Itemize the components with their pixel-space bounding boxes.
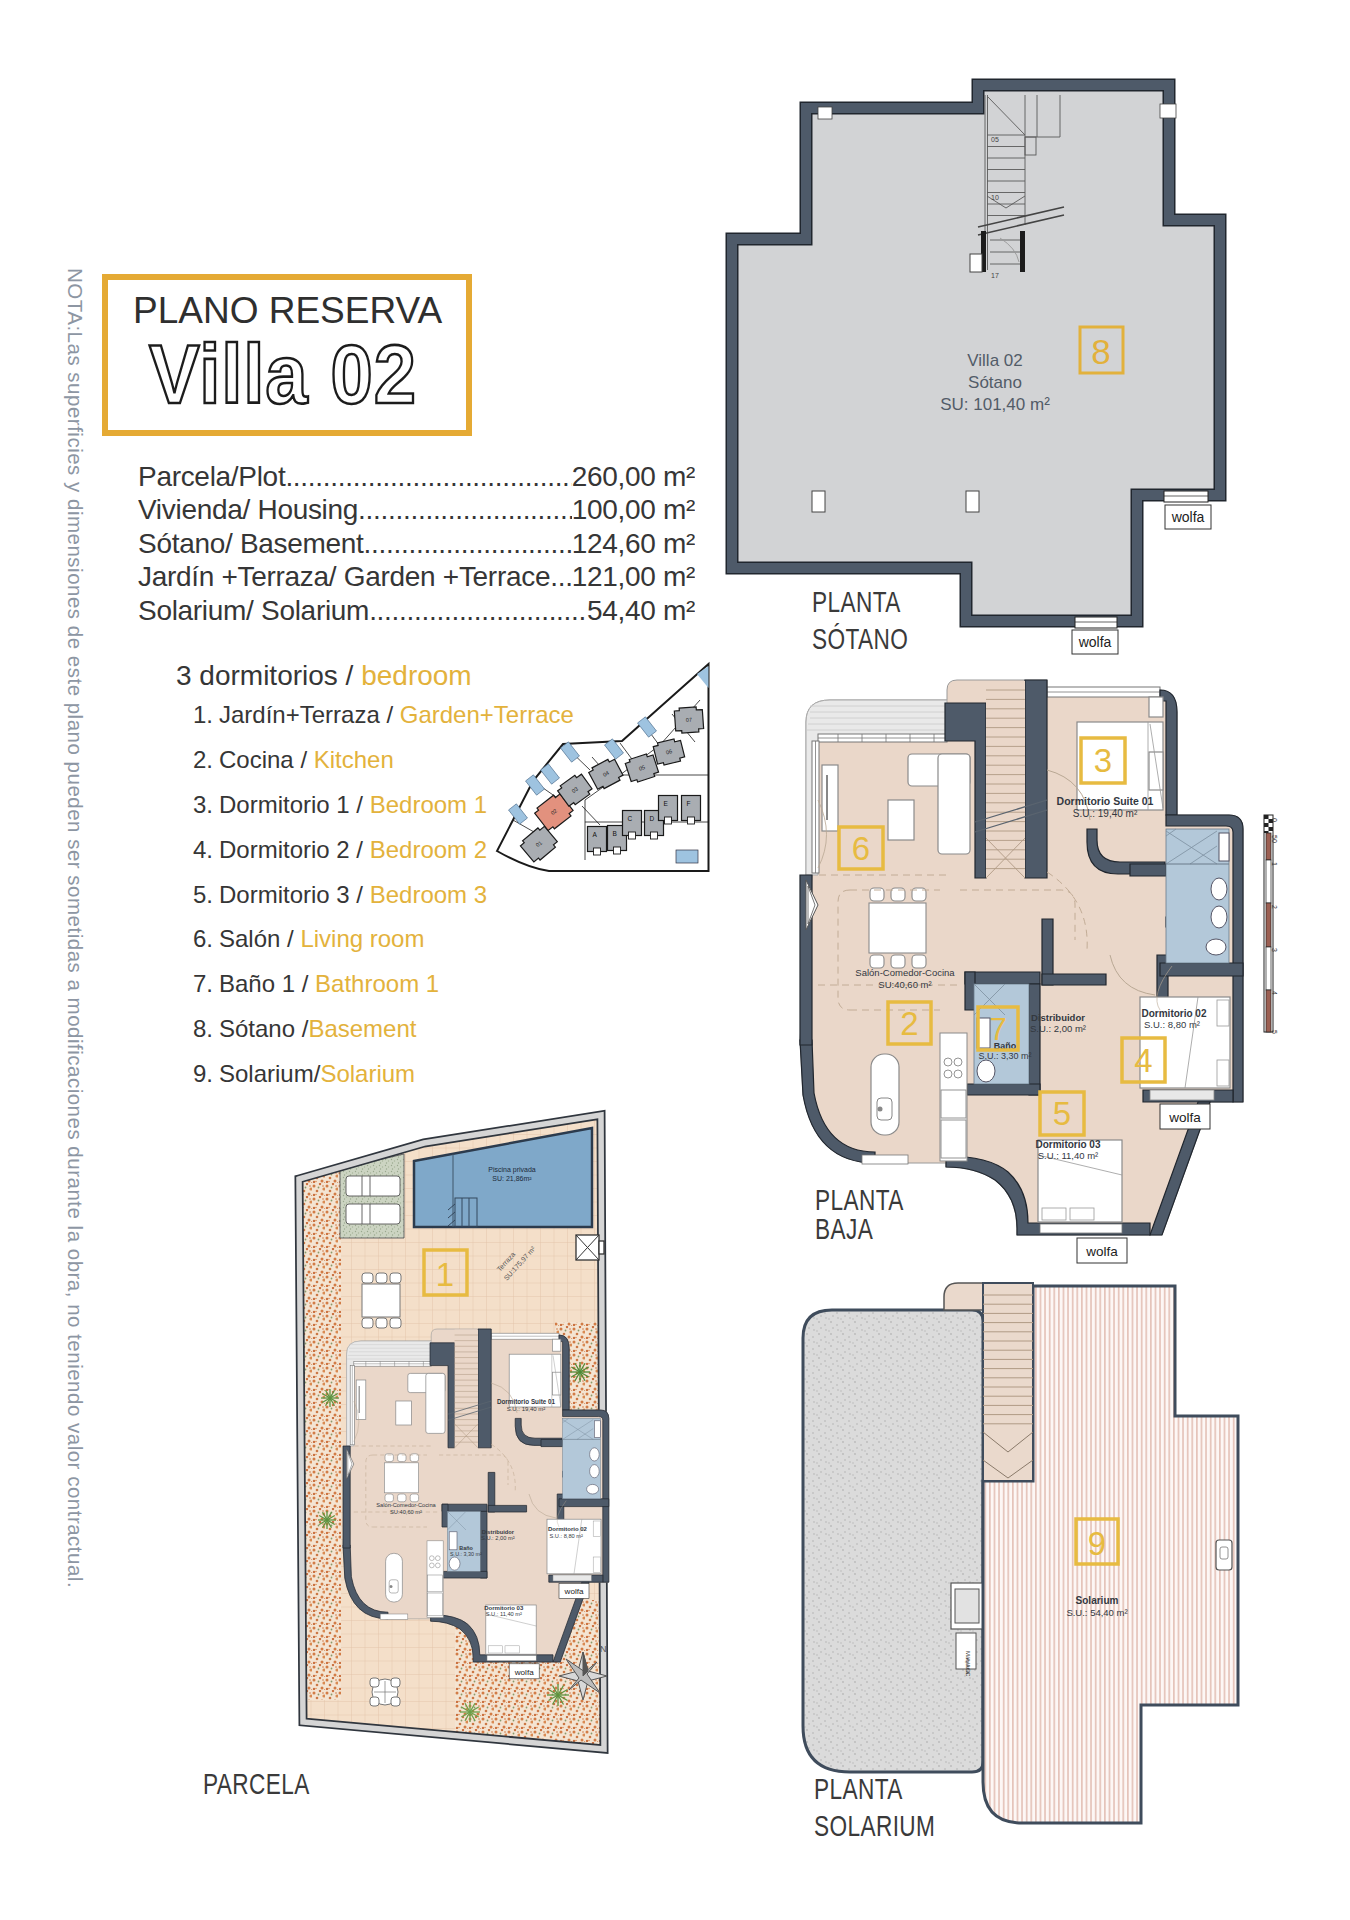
svg-text:5: 5 (1271, 1030, 1278, 1034)
svg-text:10: 10 (991, 194, 999, 201)
svg-text:D: D (650, 815, 655, 822)
svg-text:1: 1 (1271, 862, 1278, 866)
svg-text:07: 07 (686, 717, 693, 723)
svg-text:Dormitorio Suite 01: Dormitorio Suite 01 (1057, 795, 1154, 807)
svg-text:S.U.: 3,30 m²: S.U.: 3,30 m² (978, 1051, 1031, 1061)
svg-text:2: 2 (900, 1005, 918, 1042)
svg-text:3: 3 (1271, 948, 1278, 952)
svg-text:6: 6 (852, 830, 870, 867)
svg-text:Dormitorio 03: Dormitorio 03 (1035, 1139, 1100, 1150)
svg-text:Solarium: Solarium (1076, 1595, 1119, 1606)
svg-text:S.U.: 8,80 m²: S.U.: 8,80 m² (1144, 1019, 1200, 1030)
svg-text:S.U.: 2,00 m²: S.U.: 2,00 m² (1030, 1023, 1086, 1034)
svg-text:N: N (600, 1644, 607, 1654)
svg-text:3: 3 (1094, 742, 1112, 779)
svg-text:17: 17 (991, 272, 999, 279)
svg-text:SU:40,60 m²: SU:40,60 m² (878, 979, 931, 990)
svg-text:Distribuidor: Distribuidor (1031, 1012, 1085, 1023)
svg-text:8: 8 (1091, 332, 1110, 371)
svg-text:wolfa: wolfa (1078, 634, 1112, 650)
svg-text:wolfa: wolfa (1171, 509, 1205, 525)
svg-text:wolfa: wolfa (1085, 1244, 1118, 1259)
svg-text:2: 2 (1271, 905, 1278, 909)
svg-text:F: F (687, 800, 691, 807)
svg-text:S.U.: 19,40 m²: S.U.: 19,40 m² (1073, 808, 1138, 819)
svg-text:Sótano: Sótano (968, 373, 1022, 392)
svg-text:S.U.: 54,40 m²: S.U.: 54,40 m² (1066, 1607, 1127, 1618)
svg-text:SU: 101,40 m²: SU: 101,40 m² (940, 395, 1050, 414)
svg-text:Piscina privada: Piscina privada (488, 1166, 536, 1174)
svg-text:A/ACC: A/ACC (965, 1658, 971, 1677)
svg-text:A: A (593, 831, 598, 838)
svg-text:1: 1 (436, 1256, 454, 1293)
svg-text:SU: 21,86m²: SU: 21,86m² (492, 1175, 532, 1182)
svg-text:E: E (664, 800, 669, 807)
svg-text:S.U.: 11,40 m²: S.U.: 11,40 m² (1038, 1150, 1099, 1161)
svg-text:Villa 02: Villa 02 (967, 351, 1022, 370)
svg-text:50: 50 (1271, 835, 1278, 843)
svg-text:C: C (628, 815, 633, 822)
svg-text:B: B (613, 830, 617, 837)
svg-text:Salón-Comedor-Cocina: Salón-Comedor-Cocina (855, 967, 955, 978)
svg-text:4: 4 (1271, 991, 1278, 995)
svg-text:Dormitorio 02: Dormitorio 02 (1141, 1008, 1206, 1019)
svg-text:9: 9 (1088, 1525, 1106, 1562)
svg-text:05: 05 (991, 136, 999, 143)
svg-text:wolfa: wolfa (1168, 1110, 1201, 1125)
svg-text:0: 0 (1271, 818, 1278, 822)
svg-text:5: 5 (1053, 1095, 1071, 1132)
svg-text:4: 4 (1134, 1042, 1152, 1079)
svg-text:7: 7 (989, 1012, 1006, 1047)
